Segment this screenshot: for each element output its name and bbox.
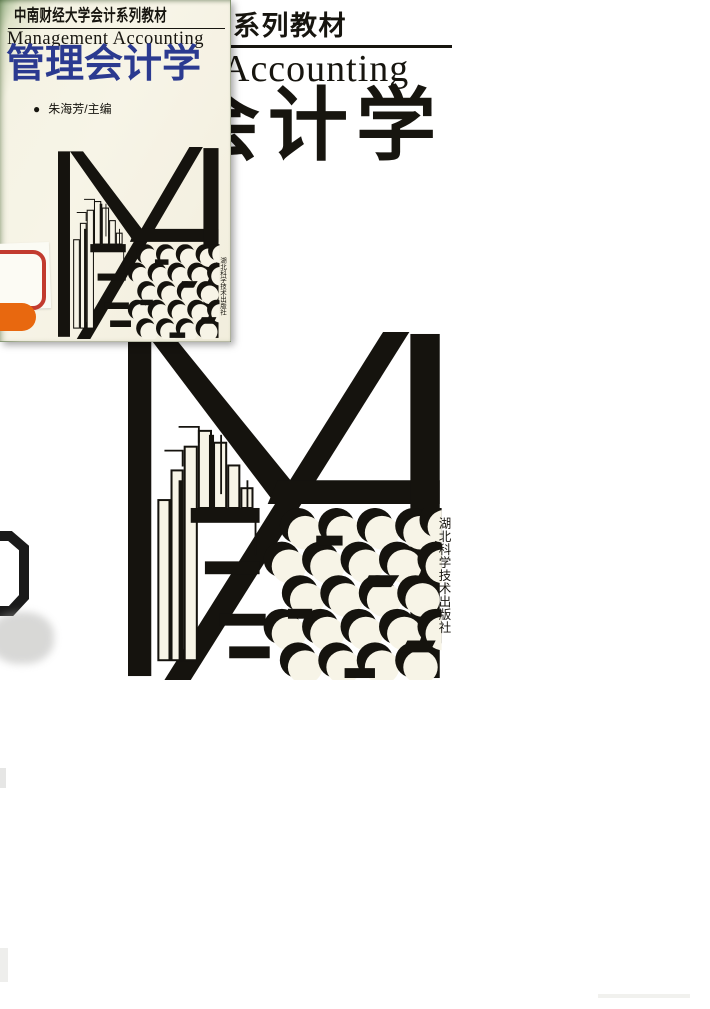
large-cover-series-label: 系列教材 — [233, 13, 347, 40]
scan-artifact-bracket — [0, 527, 30, 619]
small-cover-editor-line: ●朱海芳/主编 — [33, 102, 112, 116]
orange-label-sticker — [0, 303, 36, 331]
ma-monogram-logo — [128, 332, 462, 680]
small-cover-series-label: 中南财经大学会计系列教材 — [14, 8, 167, 25]
bullet-icon: ● — [33, 102, 40, 116]
small-cover-photo: 中南财经大学会计系列教材 Management Accounting 管理会计学… — [0, 0, 231, 342]
scan-artifact-mark — [0, 948, 8, 982]
library-label-sticker — [0, 250, 46, 310]
small-cover-publisher-name: 湖北科学技术出版社 — [218, 257, 225, 316]
ma-monogram-logo — [58, 147, 230, 339]
scanned-book-cover-page: 系列教材 Accounting 会计学 湖北科学技术出版社 中南财经大学会计系列… — [0, 0, 710, 1009]
scan-artifact-smudge — [0, 612, 54, 664]
small-cover-title: 管理会计学 — [6, 45, 201, 84]
editor-name: 朱海芳/主编 — [48, 102, 111, 116]
scan-artifact-mark — [598, 994, 690, 998]
scan-artifact-mark — [0, 768, 6, 788]
large-cover-publisher-name: 湖北科学技术出版社 — [437, 517, 450, 634]
